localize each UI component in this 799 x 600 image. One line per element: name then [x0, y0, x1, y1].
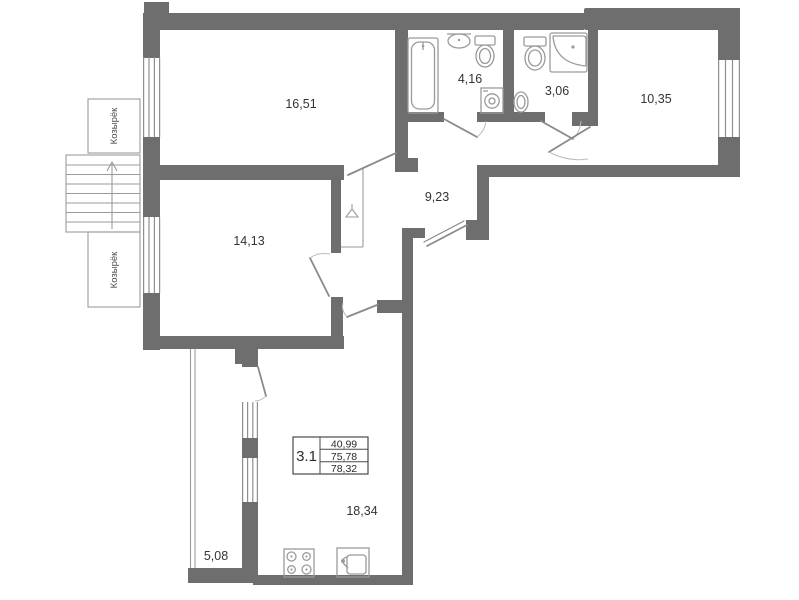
window-room1035	[719, 60, 740, 137]
washing-machine-icon	[481, 88, 503, 113]
canopy-top-label: Козырёк	[109, 107, 120, 144]
window-kitchen-lower	[243, 458, 258, 502]
door-wc	[541, 121, 573, 139]
floor-plan: Козырёк Козырёк	[0, 0, 799, 600]
total-area-with-balcony-value: 78,32	[331, 463, 357, 475]
shower-icon	[550, 33, 587, 72]
canopy-top: Козырёк	[88, 99, 140, 153]
stove-icon	[284, 549, 314, 577]
unit-number: 3.1	[296, 448, 317, 465]
floor-plan-drawing: Козырёк Козырёк	[0, 0, 799, 600]
living-area-value: 40,99	[331, 439, 357, 451]
exterior-walls	[143, 2, 740, 585]
windows	[144, 57, 740, 568]
room-label-hall: 9,23	[425, 190, 449, 204]
door-kitchen	[347, 305, 377, 317]
balcony-glazing	[191, 349, 196, 568]
canopy-bottom: Козырёк	[88, 232, 140, 307]
wardrobe-icon	[341, 169, 363, 247]
door-room1651	[348, 153, 396, 175]
window-room1413	[144, 217, 160, 293]
wc-toilet-icon	[524, 37, 546, 70]
toilet-icon	[475, 36, 495, 67]
room-label-balcony: 5,08	[204, 549, 228, 563]
door-entrance	[424, 221, 467, 246]
total-area-value: 75,78	[331, 451, 357, 463]
door-room1413	[310, 258, 329, 296]
room-label-bathroom: 4,16	[458, 72, 482, 86]
kitchen-sink-icon	[337, 548, 369, 577]
window-kitchen-upper	[243, 402, 258, 438]
room-label-kitchen: 18,34	[346, 504, 377, 518]
wc-sink-icon	[514, 92, 528, 112]
room-label-wc: 3,06	[545, 84, 569, 98]
window-room1651	[144, 57, 160, 137]
entrance-stairs	[66, 155, 140, 232]
room-label-1413: 14,13	[233, 234, 264, 248]
sink-icon	[447, 34, 471, 48]
up-arrow-icon	[107, 162, 117, 229]
door-room1035	[549, 127, 590, 152]
door-bathroom	[444, 119, 477, 137]
room-label-1651: 16,51	[285, 97, 316, 111]
room-label-1035: 10,35	[640, 92, 671, 106]
doors	[255, 119, 590, 401]
area-table: 3.1 40,99 75,78 78,32	[293, 437, 368, 475]
door-balcony	[258, 367, 266, 396]
canopy-bottom-label: Козырёк	[109, 251, 120, 288]
bathtub-icon	[408, 38, 438, 113]
